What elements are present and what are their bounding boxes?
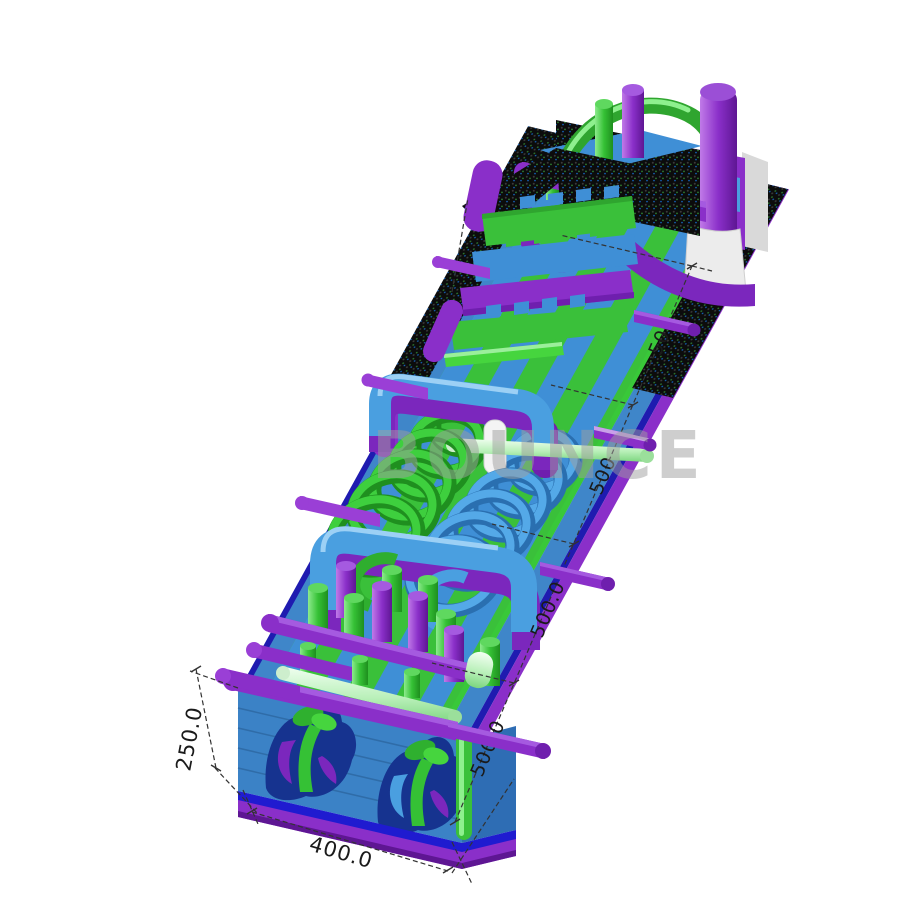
purple-pillar [700,90,737,248]
dimension-label-250: 250.0 [171,704,207,773]
product-render-canvas: 400.0 250.0 500.0 500.0 500 500 [0,0,900,900]
obstacle-course-illustration: 400.0 250.0 500.0 500.0 500 500 [0,0,900,900]
watermark-text: BOUNCE [372,417,705,494]
